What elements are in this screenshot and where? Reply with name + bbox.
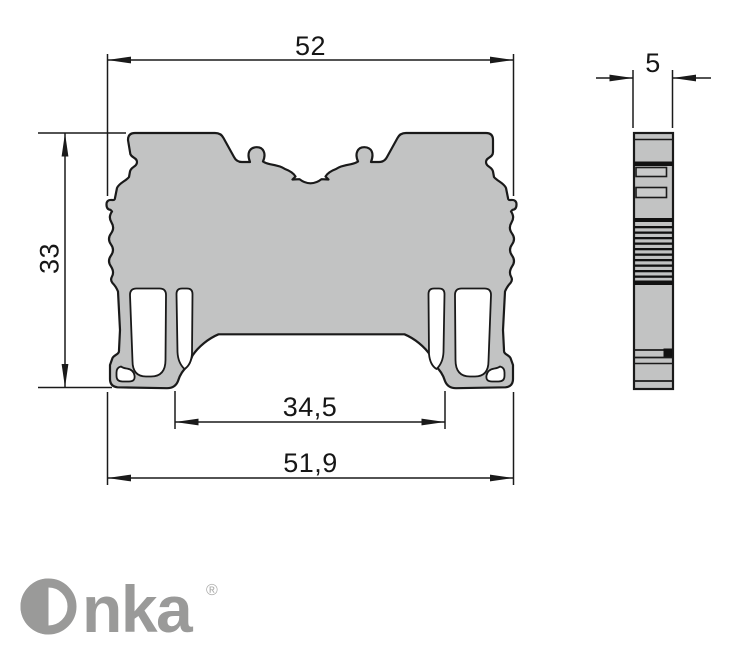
side-tab-upper [636, 168, 667, 177]
onka-logo: nka ® [18, 570, 248, 642]
right-foot-channel [429, 289, 445, 370]
dim-label-rail-opening: 34,5 [175, 394, 445, 421]
dim-label-thickness: 5 [630, 50, 676, 77]
front-view-drawing [107, 133, 517, 388]
dim-label-overall-width: 52 [108, 33, 513, 60]
side-view-drawing [634, 133, 673, 389]
dim-thickness-lines [596, 70, 711, 128]
dim-label-base-width: 51,9 [108, 450, 513, 477]
side-latch-square [664, 349, 673, 358]
dim-label-height: 33 [37, 233, 64, 285]
technical-drawing-canvas: 52 33 34,5 51,9 5 nka ® [0, 0, 750, 645]
side-tab-lower [636, 188, 667, 198]
left-foot-channel [177, 289, 193, 370]
logo-registered-mark: ® [206, 582, 218, 600]
right-foot-slot [455, 289, 491, 377]
left-foot-slot [130, 289, 166, 377]
drawing-svg [0, 0, 750, 645]
logo-o-icon [20, 578, 77, 635]
logo-text: nka [82, 576, 191, 642]
